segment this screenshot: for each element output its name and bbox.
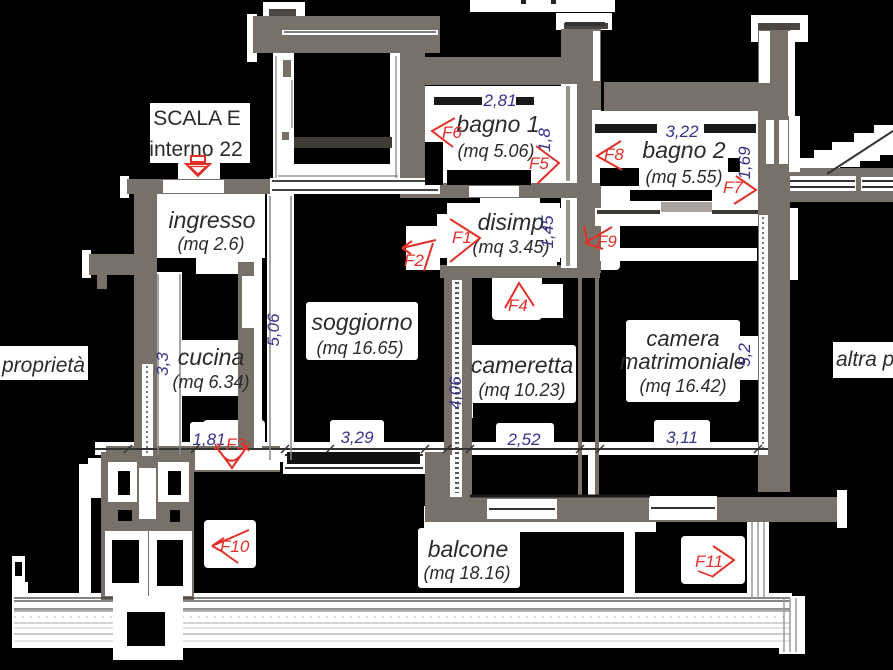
svg-text:3,3: 3,3 [153,352,172,376]
svg-text:1,81: 1,81 [192,430,225,449]
svg-text:(mq 16.65): (mq 16.65) [316,338,403,358]
svg-text:(mq 16.42): (mq 16.42) [639,376,726,396]
svg-text:F5: F5 [529,154,549,173]
svg-text:camera: camera [646,326,719,351]
svg-text:cameretta: cameretta [471,352,573,378]
svg-text:matrimoniale: matrimoniale [620,349,746,374]
svg-text:F8: F8 [604,145,624,164]
svg-text:F2: F2 [404,251,424,270]
svg-text:(mq 6.34): (mq 6.34) [172,372,249,392]
svg-text:balcone: balcone [428,536,509,562]
svg-text:5,06: 5,06 [264,313,283,347]
svg-text:(mq 2.6): (mq 2.6) [177,234,244,254]
svg-text:4,06: 4,06 [446,376,465,410]
svg-text:(mq 10.23): (mq 10.23) [478,380,565,400]
svg-text:1,69: 1,69 [735,146,754,180]
svg-text:bagno 1: bagno 1 [456,111,539,137]
svg-text:(mq 18.16): (mq 18.16) [423,563,510,583]
svg-text:F3: F3 [226,435,246,454]
svg-text:F1: F1 [452,228,472,247]
svg-text:soggiorno: soggiorno [311,309,412,335]
svg-text:SCALA E: SCALA E [153,107,241,130]
svg-text:(mq 5.55): (mq 5.55) [645,167,722,187]
svg-text:3,11: 3,11 [666,428,698,447]
svg-text:F4: F4 [508,296,528,315]
svg-text:altra pr: altra pr [836,348,893,371]
svg-text:proprietà: proprietà [1,354,85,377]
svg-text:2,81: 2,81 [482,91,516,110]
svg-text:(mq 5.06): (mq 5.06) [457,141,534,161]
svg-text:F11: F11 [695,552,723,571]
svg-text:F7: F7 [723,178,743,197]
svg-text:F10: F10 [220,537,250,556]
svg-text:3,22: 3,22 [665,122,699,141]
svg-text:interno 22: interno 22 [149,138,242,161]
svg-text:F9: F9 [597,232,617,251]
svg-text:F6: F6 [442,123,462,142]
svg-text:1,45: 1,45 [538,215,557,249]
svg-text:cucina: cucina [178,344,244,370]
svg-text:3,29: 3,29 [340,428,374,447]
svg-text:ingresso: ingresso [169,207,256,233]
svg-text:5,2: 5,2 [735,343,754,367]
svg-text:2,52: 2,52 [506,430,541,449]
